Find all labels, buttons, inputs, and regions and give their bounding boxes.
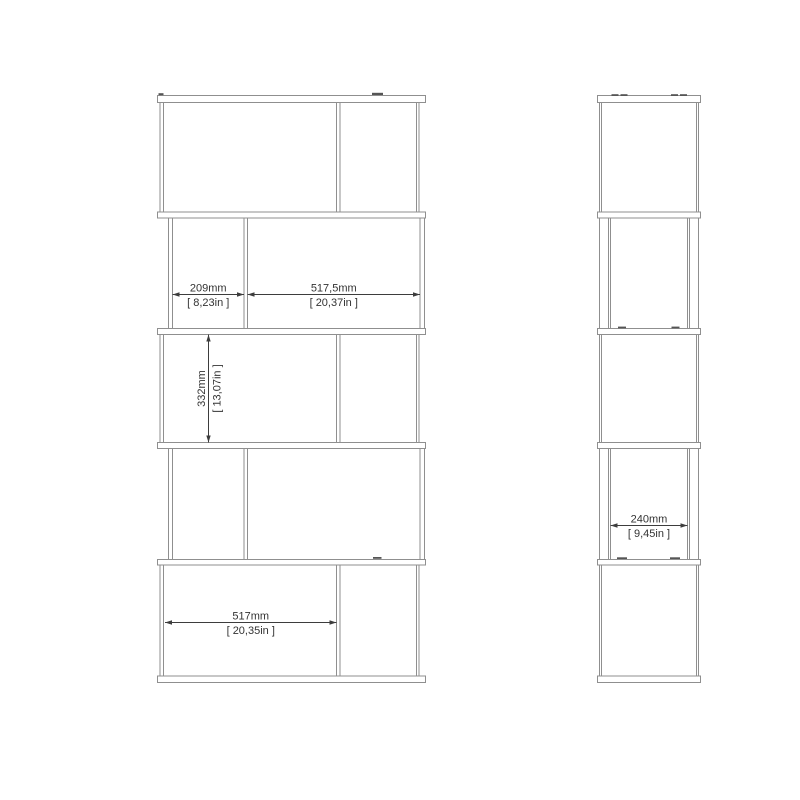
dimension-large-opening-width: 517,5mm [ 20,37in ]: [248, 283, 421, 310]
front-row-4-panels: [169, 449, 425, 560]
side-section-3-panels: [600, 335, 699, 443]
arrowhead-right: [237, 292, 244, 296]
side-section-2-panels: [600, 218, 699, 329]
front-row-2-panels: [169, 218, 425, 329]
front-fitting-marks: [159, 93, 384, 559]
dimension-label-in: [ 9,45in ]: [628, 528, 670, 540]
front-row-5-panels: [160, 565, 419, 676]
arrowhead-left: [165, 620, 172, 624]
front-row-1-panels: [160, 103, 419, 213]
dimension-small-opening-width: 209mm [ 8,23in ]: [173, 283, 245, 310]
side-section-4-panels: [600, 449, 699, 560]
arrowhead-right: [330, 620, 337, 624]
side-view: 240mm [ 9,45in ]: [598, 94, 701, 682]
dimension-label-in: [ 13,07in ]: [212, 364, 224, 412]
dimension-opening-height: 332mm [ 13,07in ]: [196, 335, 224, 443]
dimension-label-mm: 240mm: [631, 514, 668, 526]
side-section-5-panels: [600, 565, 699, 676]
arrowhead-right: [413, 292, 420, 296]
dimension-label-mm: 517,5mm: [311, 283, 357, 295]
furniture-dimension-drawing: 209mm [ 8,23in ] 517,5mm [ 20,37in ] 332…: [0, 0, 800, 800]
dimension-label-mm: 209mm: [190, 283, 227, 295]
arrowhead-left: [611, 523, 618, 527]
side-fitting-marks: [612, 94, 688, 559]
arrowhead-left: [173, 292, 180, 296]
dimension-side-depth: 240mm [ 9,45in ]: [611, 514, 688, 541]
dimension-label-in: [ 20,37in ]: [310, 297, 358, 309]
dimension-label-mm: 332mm: [196, 370, 208, 407]
dimension-label-mm: 517mm: [232, 611, 269, 623]
dimension-label-in: [ 8,23in ]: [187, 297, 229, 309]
side-section-1-panels: [600, 103, 699, 213]
dimension-label-in: [ 20,35in ]: [227, 625, 275, 637]
arrowhead-left: [248, 292, 255, 296]
dimension-bottom-opening-width: 517mm [ 20,35in ]: [165, 611, 337, 638]
arrowhead-bottom: [206, 436, 210, 443]
side-shelf-boards: [598, 96, 701, 683]
arrowhead-right: [681, 523, 688, 527]
front-view: 209mm [ 8,23in ] 517,5mm [ 20,37in ] 332…: [158, 93, 426, 683]
arrowhead-top: [206, 335, 210, 342]
